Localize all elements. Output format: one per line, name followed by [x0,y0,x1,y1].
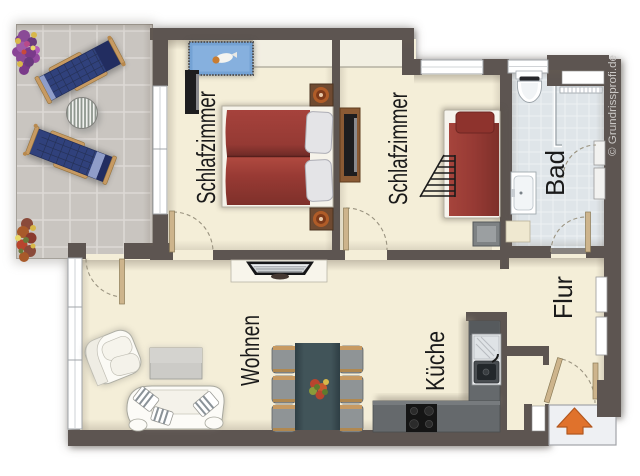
svg-text:Bad: Bad [540,150,570,196]
svg-text:Wohnen: Wohnen [235,315,265,386]
svg-text:Küche: Küche [420,331,450,391]
svg-text:Schlafzimmer: Schlafzimmer [191,91,221,204]
svg-text:Schlafzimmer: Schlafzimmer [383,92,413,205]
svg-text:Flur: Flur [548,276,578,319]
svg-text:© Grundrissprofi.de: © Grundrissprofi.de [607,55,619,156]
